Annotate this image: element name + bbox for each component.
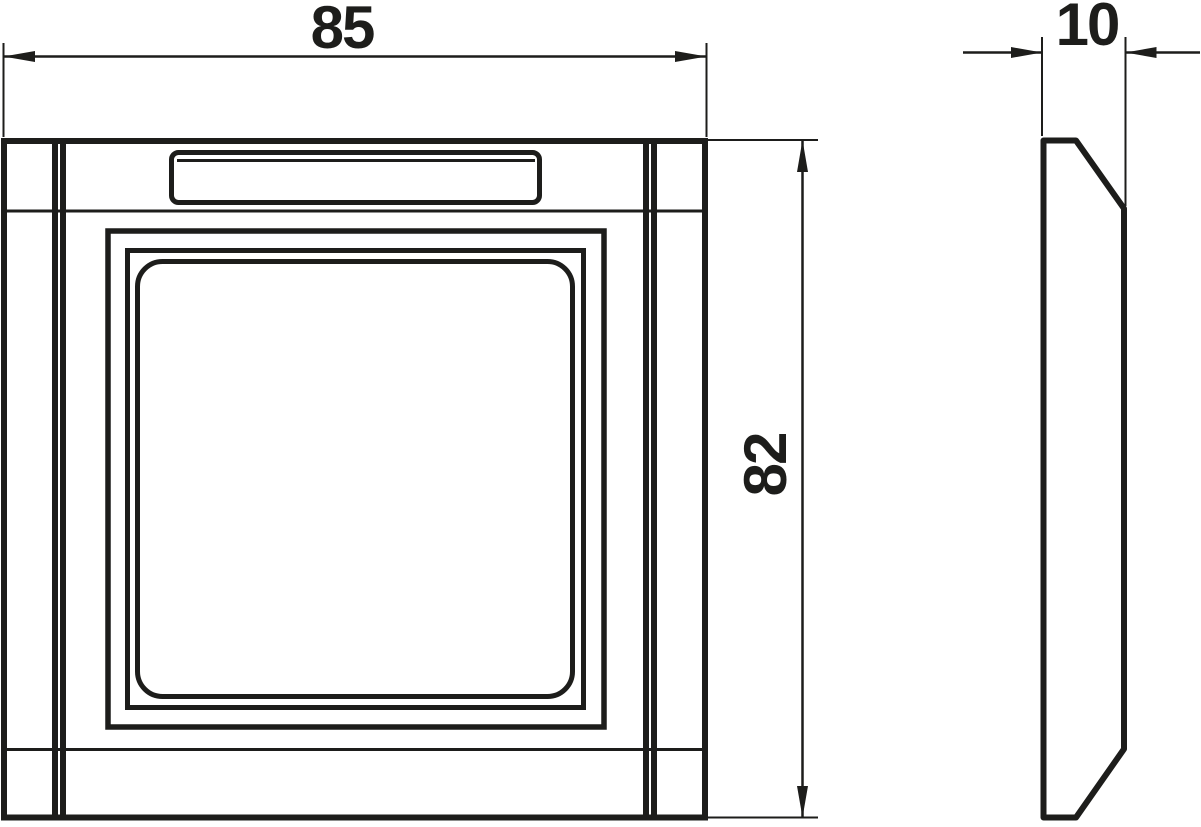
front-middle-frame-border [108,231,604,727]
width-arrowhead-right [675,51,707,62]
height-arrowhead-bottom [797,786,808,818]
side-view [1044,141,1125,818]
width-dimension-label: 85 [287,0,397,56]
front-inner-frame-border [128,251,584,708]
side-profile-outline [1044,141,1125,818]
dimension-drawing [0,0,1201,827]
height-arrowhead-top [797,140,808,172]
depth-dimension-label: 10 [1032,0,1142,53]
width-arrowhead-left [4,51,36,62]
technical-drawing-canvas: 85 82 10 [0,0,1201,827]
front-view [4,141,705,818]
front-center-opening [138,262,573,697]
height-dimension-label: 82 [738,410,794,520]
